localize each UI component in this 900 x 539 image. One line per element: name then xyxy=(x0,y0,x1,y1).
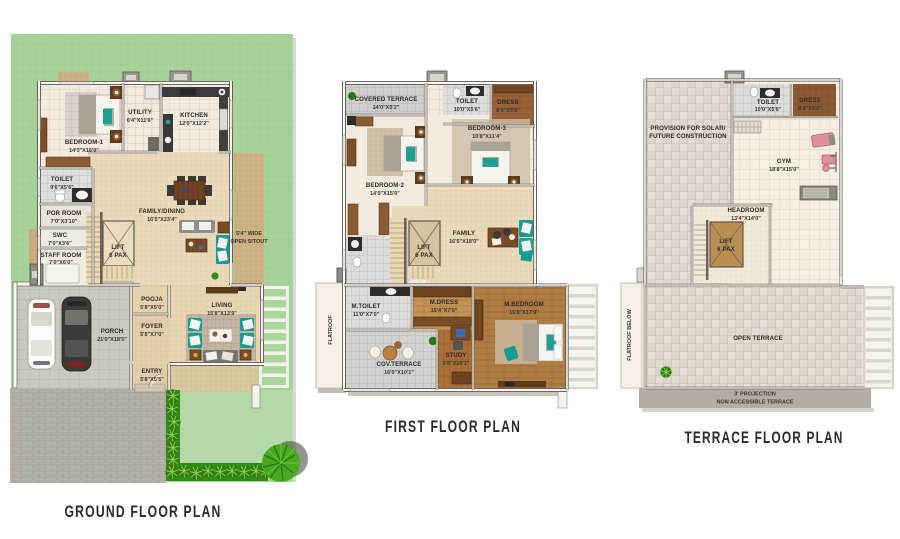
svg-text:7'0"X3'10": 7'0"X3'10" xyxy=(51,219,78,225)
svg-text:FLATROOF BELOW: FLATROOF BELOW xyxy=(627,308,633,360)
svg-text:BEDROOM-2: BEDROOM-2 xyxy=(366,182,405,189)
svg-text:10'0"X5'6": 10'0"X5'6" xyxy=(454,107,481,113)
svg-text:18'8"X15'0": 18'8"X15'0" xyxy=(769,167,799,173)
svg-text:8'4"X5'6": 8'4"X5'6" xyxy=(798,106,822,112)
svg-text:6 PAX: 6 PAX xyxy=(109,252,127,259)
svg-text:TERRACE FLOOR PLAN: TERRACE FLOOR PLAN xyxy=(685,429,844,447)
svg-text:POOJA: POOJA xyxy=(141,296,163,303)
svg-text:ENTRY: ENTRY xyxy=(142,368,163,375)
svg-text:TOILET: TOILET xyxy=(757,99,779,106)
svg-text:16'5"X23'4": 16'5"X23'4" xyxy=(147,217,177,223)
svg-text:DRESS: DRESS xyxy=(497,99,519,106)
svg-text:POR ROOM: POR ROOM xyxy=(47,210,82,217)
svg-text:LIFT: LIFT xyxy=(417,244,430,251)
svg-text:PROVISION FOR SOLAR/: PROVISION FOR SOLAR/ xyxy=(650,125,725,132)
svg-text:14'0"X15'0": 14'0"X15'0" xyxy=(69,148,99,154)
svg-text:BEDROOM-1: BEDROOM-1 xyxy=(65,139,104,146)
svg-text:BEDROOM-3: BEDROOM-3 xyxy=(468,125,507,132)
svg-text:OPEN SITOUT: OPEN SITOUT xyxy=(230,239,268,245)
svg-text:UTILITY: UTILITY xyxy=(128,109,152,116)
svg-text:TOILET: TOILET xyxy=(456,98,478,105)
svg-text:NON ACCESSIBLE TERRACE: NON ACCESSIBLE TERRACE xyxy=(716,400,793,406)
svg-text:16'0"X10'1": 16'0"X10'1" xyxy=(384,370,414,376)
svg-text:TOILET: TOILET xyxy=(51,176,73,183)
svg-text:M.DRESS: M.DRESS xyxy=(430,299,458,306)
svg-text:14'0"X15'0": 14'0"X15'0" xyxy=(370,191,400,197)
svg-text:6'4"X11'6": 6'4"X11'6" xyxy=(127,118,154,124)
svg-text:5'8"X10'1": 5'8"X10'1" xyxy=(443,361,470,367)
svg-text:FAMILY: FAMILY xyxy=(453,230,475,237)
svg-text:7'0"X6'0": 7'0"X6'0" xyxy=(49,260,73,266)
svg-text:SWC: SWC xyxy=(53,232,68,239)
svg-text:DRESS: DRESS xyxy=(799,97,821,104)
svg-text:5'4" WIDE: 5'4" WIDE xyxy=(236,231,262,237)
svg-text:FAMILY/DINING: FAMILY/DINING xyxy=(139,208,185,215)
svg-text:6 PAX: 6 PAX xyxy=(415,252,433,259)
svg-text:3' PROJECTION: 3' PROJECTION xyxy=(734,392,776,398)
svg-text:FLATROOF: FLATROOF xyxy=(328,315,334,345)
svg-text:15'4"X7'0": 15'4"X7'0" xyxy=(431,308,458,314)
svg-text:11'0"X7'0": 11'0"X7'0" xyxy=(353,312,380,318)
svg-text:5'8"X5'0": 5'8"X5'0" xyxy=(140,305,164,311)
svg-text:10'8"X11'4": 10'8"X11'4" xyxy=(472,134,502,140)
svg-text:COVERED TERRACE: COVERED TERRACE xyxy=(355,96,418,103)
svg-text:5'8"X7'0": 5'8"X7'0" xyxy=(140,332,164,338)
svg-text:FOYER: FOYER xyxy=(141,323,163,330)
svg-text:LIFT: LIFT xyxy=(111,244,124,251)
svg-text:COV.TERRACE: COV.TERRACE xyxy=(377,361,422,368)
svg-text:5'8"X5'5": 5'8"X5'5" xyxy=(140,377,164,383)
svg-text:21'0"X18'5": 21'0"X18'5" xyxy=(97,337,127,343)
svg-text:FUTURE CONSTRUCTION: FUTURE CONSTRUCTION xyxy=(649,133,726,140)
svg-text:STAFF ROOM: STAFF ROOM xyxy=(41,252,82,259)
svg-text:7'0"X3'6": 7'0"X3'6" xyxy=(48,241,72,247)
svg-text:HEADROOM: HEADROOM xyxy=(727,207,764,214)
svg-text:LIFT: LIFT xyxy=(719,238,732,245)
svg-text:FIRST FLOOR PLAN: FIRST FLOOR PLAN xyxy=(385,418,521,436)
svg-text:8'4"X5'6": 8'4"X5'6" xyxy=(496,108,520,114)
svg-text:15'8"X17'9": 15'8"X17'9" xyxy=(509,310,539,316)
svg-text:M.BEDROOM: M.BEDROOM xyxy=(504,301,544,308)
svg-text:13'4"X14'0": 13'4"X14'0" xyxy=(731,216,761,222)
svg-text:6 PAX: 6 PAX xyxy=(717,246,735,253)
svg-text:GYM: GYM xyxy=(777,158,791,165)
svg-text:PORCH: PORCH xyxy=(101,328,124,335)
svg-text:GROUND FLOOR PLAN: GROUND FLOOR PLAN xyxy=(65,503,222,521)
svg-text:16'5"X18'0": 16'5"X18'0" xyxy=(449,239,479,245)
svg-text:14'0"X5'2": 14'0"X5'2" xyxy=(373,105,400,111)
svg-text:KITCHEN: KITCHEN xyxy=(180,112,208,119)
svg-text:M.TOILET: M.TOILET xyxy=(351,303,380,310)
svg-text:15'8"X13'9": 15'8"X13'9" xyxy=(207,311,237,317)
svg-text:LIVING: LIVING xyxy=(212,302,233,309)
svg-text:9'6"X5'6": 9'6"X5'6" xyxy=(50,185,74,191)
svg-text:STUDY: STUDY xyxy=(445,352,466,359)
svg-text:OPEN TERRACE: OPEN TERRACE xyxy=(733,335,783,342)
svg-text:12'0"X12'2": 12'0"X12'2" xyxy=(179,121,209,127)
svg-text:10'0"X5'6": 10'0"X5'6" xyxy=(755,107,782,113)
